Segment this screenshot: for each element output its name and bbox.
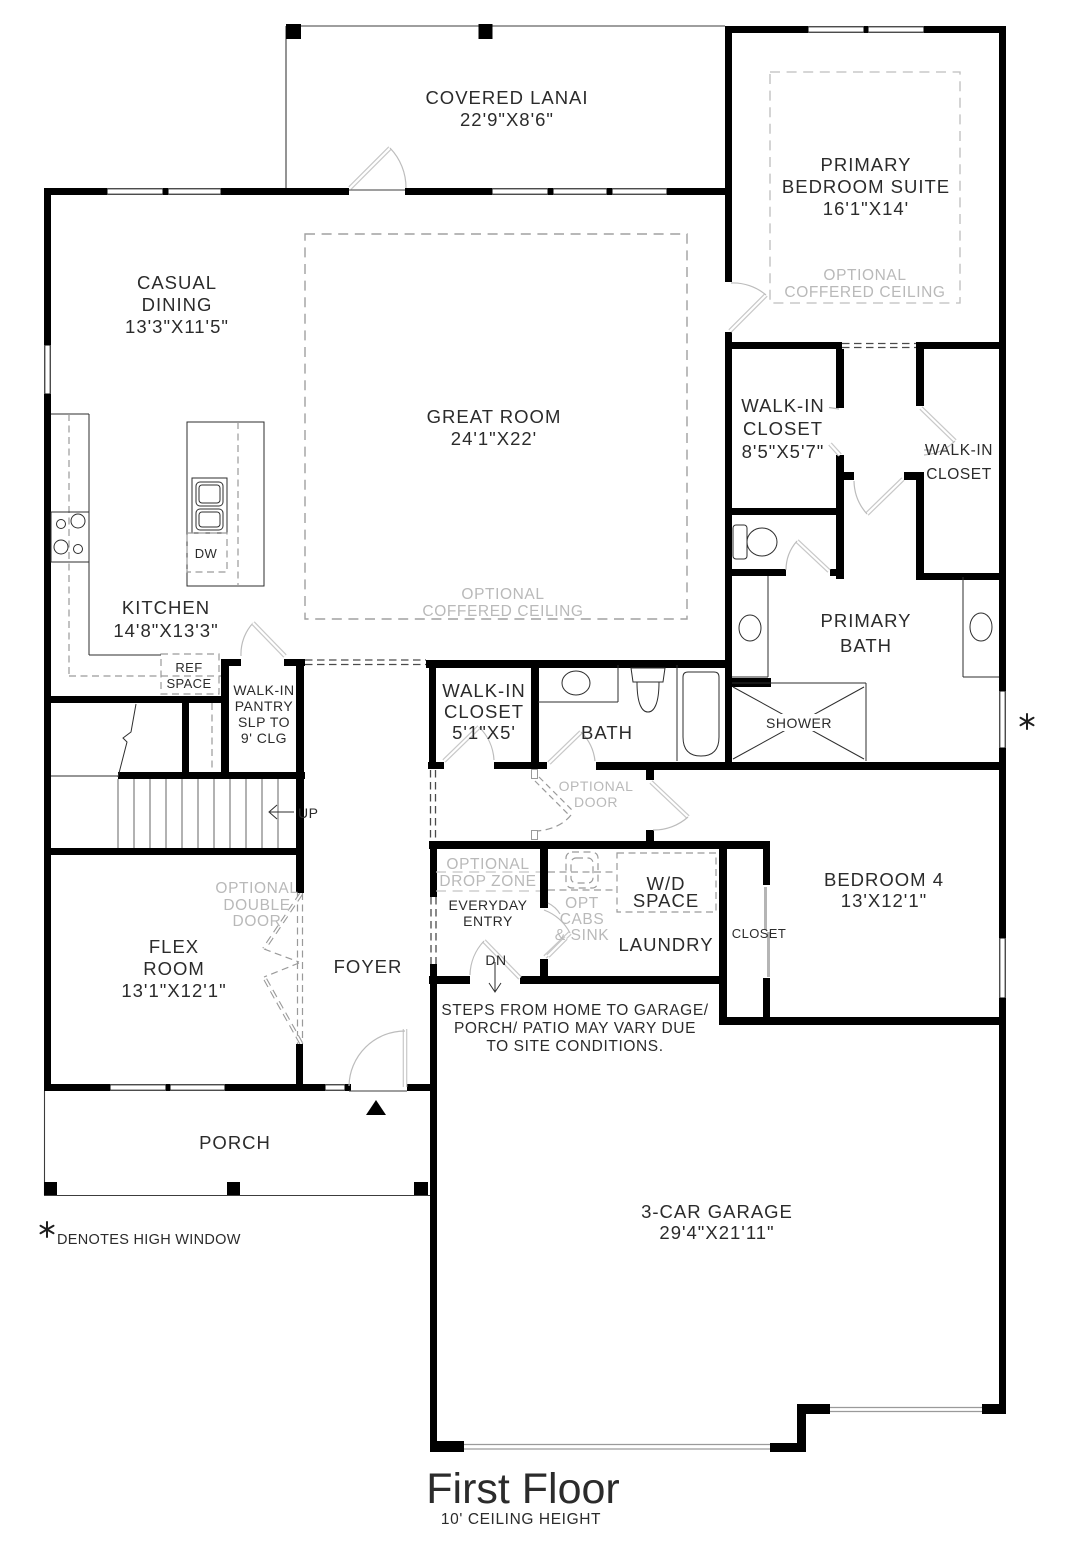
svg-text:10' CEILING HEIGHT: 10' CEILING HEIGHT — [441, 1511, 601, 1528]
svg-text:DOOR: DOOR — [233, 913, 282, 930]
svg-text:COVERED LANAI: COVERED LANAI — [425, 87, 588, 108]
svg-text:CLOSET: CLOSET — [732, 926, 786, 941]
svg-text:CABS: CABS — [560, 911, 605, 928]
svg-text:OPTIONAL: OPTIONAL — [823, 267, 906, 284]
svg-text:PANTRY: PANTRY — [235, 698, 294, 714]
svg-text:DROP ZONE: DROP ZONE — [439, 873, 536, 890]
svg-text:STEPS FROM HOME TO GARAGE/: STEPS FROM HOME TO GARAGE/ — [441, 1002, 708, 1019]
svg-text:OPTIONAL: OPTIONAL — [461, 586, 544, 603]
svg-text:EVERYDAY: EVERYDAY — [449, 897, 528, 913]
svg-text:DW: DW — [195, 546, 218, 561]
svg-text:13'X12'1": 13'X12'1" — [841, 890, 927, 911]
svg-text:13'3"X11'5": 13'3"X11'5" — [125, 316, 229, 337]
svg-text:REF: REF — [175, 660, 202, 675]
svg-text:BEDROOM SUITE: BEDROOM SUITE — [782, 176, 950, 197]
svg-text:8'5"X5'7": 8'5"X5'7" — [742, 441, 825, 462]
svg-text:BATH: BATH — [840, 635, 892, 656]
svg-text:29'4"X21'11": 29'4"X21'11" — [659, 1222, 774, 1243]
svg-text:CLOSET: CLOSET — [743, 418, 823, 439]
svg-text:COFFERED CEILING: COFFERED CEILING — [422, 603, 583, 620]
svg-text:WALK-IN: WALK-IN — [925, 442, 993, 459]
svg-text:9' CLG: 9' CLG — [241, 730, 287, 746]
svg-text:OPTIONAL: OPTIONAL — [446, 856, 529, 873]
svg-text:FOYER: FOYER — [334, 956, 403, 977]
svg-text:OPTIONAL: OPTIONAL — [559, 778, 634, 794]
svg-text:First Floor: First Floor — [426, 1465, 620, 1513]
svg-text:DN: DN — [485, 952, 506, 968]
svg-text:13'1"X12'1": 13'1"X12'1" — [121, 980, 226, 1001]
svg-text:3-CAR GARAGE: 3-CAR GARAGE — [641, 1201, 793, 1222]
svg-text:& SINK: & SINK — [555, 927, 609, 944]
svg-text:OPT: OPT — [565, 895, 599, 912]
svg-text:24'1"X22': 24'1"X22' — [451, 428, 537, 449]
svg-text:PRIMARY: PRIMARY — [821, 610, 912, 631]
svg-text:WALK-IN: WALK-IN — [442, 680, 525, 701]
svg-text:CLOSET: CLOSET — [926, 466, 992, 483]
svg-text:BEDROOM 4: BEDROOM 4 — [824, 869, 944, 890]
svg-text:SPACE: SPACE — [633, 890, 699, 911]
svg-text:PORCH/ PATIO MAY VARY DUE: PORCH/ PATIO MAY VARY DUE — [454, 1020, 696, 1037]
svg-text:SLP TO: SLP TO — [238, 714, 290, 730]
svg-text:DINING: DINING — [142, 294, 213, 315]
svg-text:WALK-IN: WALK-IN — [741, 395, 824, 416]
svg-text:ROOM: ROOM — [143, 958, 205, 979]
svg-text:DOOR: DOOR — [574, 794, 618, 810]
svg-text:PORCH: PORCH — [199, 1132, 271, 1153]
svg-text:CLOSET: CLOSET — [444, 701, 524, 722]
svg-text:COFFERED CEILING: COFFERED CEILING — [784, 284, 945, 301]
svg-text:DOUBLE: DOUBLE — [223, 897, 290, 914]
svg-text:5'1"X5': 5'1"X5' — [452, 722, 516, 743]
svg-text:TO SITE CONDITIONS.: TO SITE CONDITIONS. — [486, 1038, 663, 1055]
svg-text:SHOWER: SHOWER — [766, 715, 832, 731]
svg-text:KITCHEN: KITCHEN — [122, 597, 210, 618]
svg-text:GREAT ROOM: GREAT ROOM — [427, 406, 562, 427]
svg-text:16'1"X14': 16'1"X14' — [823, 198, 909, 219]
svg-text:14'8"X13'3": 14'8"X13'3" — [113, 620, 218, 641]
svg-text:SPACE: SPACE — [166, 676, 211, 691]
svg-text:FLEX: FLEX — [149, 936, 199, 957]
svg-text:LAUNDRY: LAUNDRY — [618, 934, 713, 955]
svg-text:22'9"X8'6": 22'9"X8'6" — [460, 109, 554, 130]
svg-text:CASUAL: CASUAL — [137, 272, 217, 293]
svg-text:OPTIONAL: OPTIONAL — [215, 880, 298, 897]
svg-text:ENTRY: ENTRY — [463, 913, 513, 929]
svg-text:UP: UP — [298, 805, 318, 821]
svg-text:PRIMARY: PRIMARY — [821, 154, 912, 175]
svg-text:WALK-IN: WALK-IN — [233, 682, 294, 698]
svg-text:DENOTES HIGH WINDOW: DENOTES HIGH WINDOW — [57, 1232, 241, 1248]
svg-text:BATH: BATH — [581, 722, 633, 743]
